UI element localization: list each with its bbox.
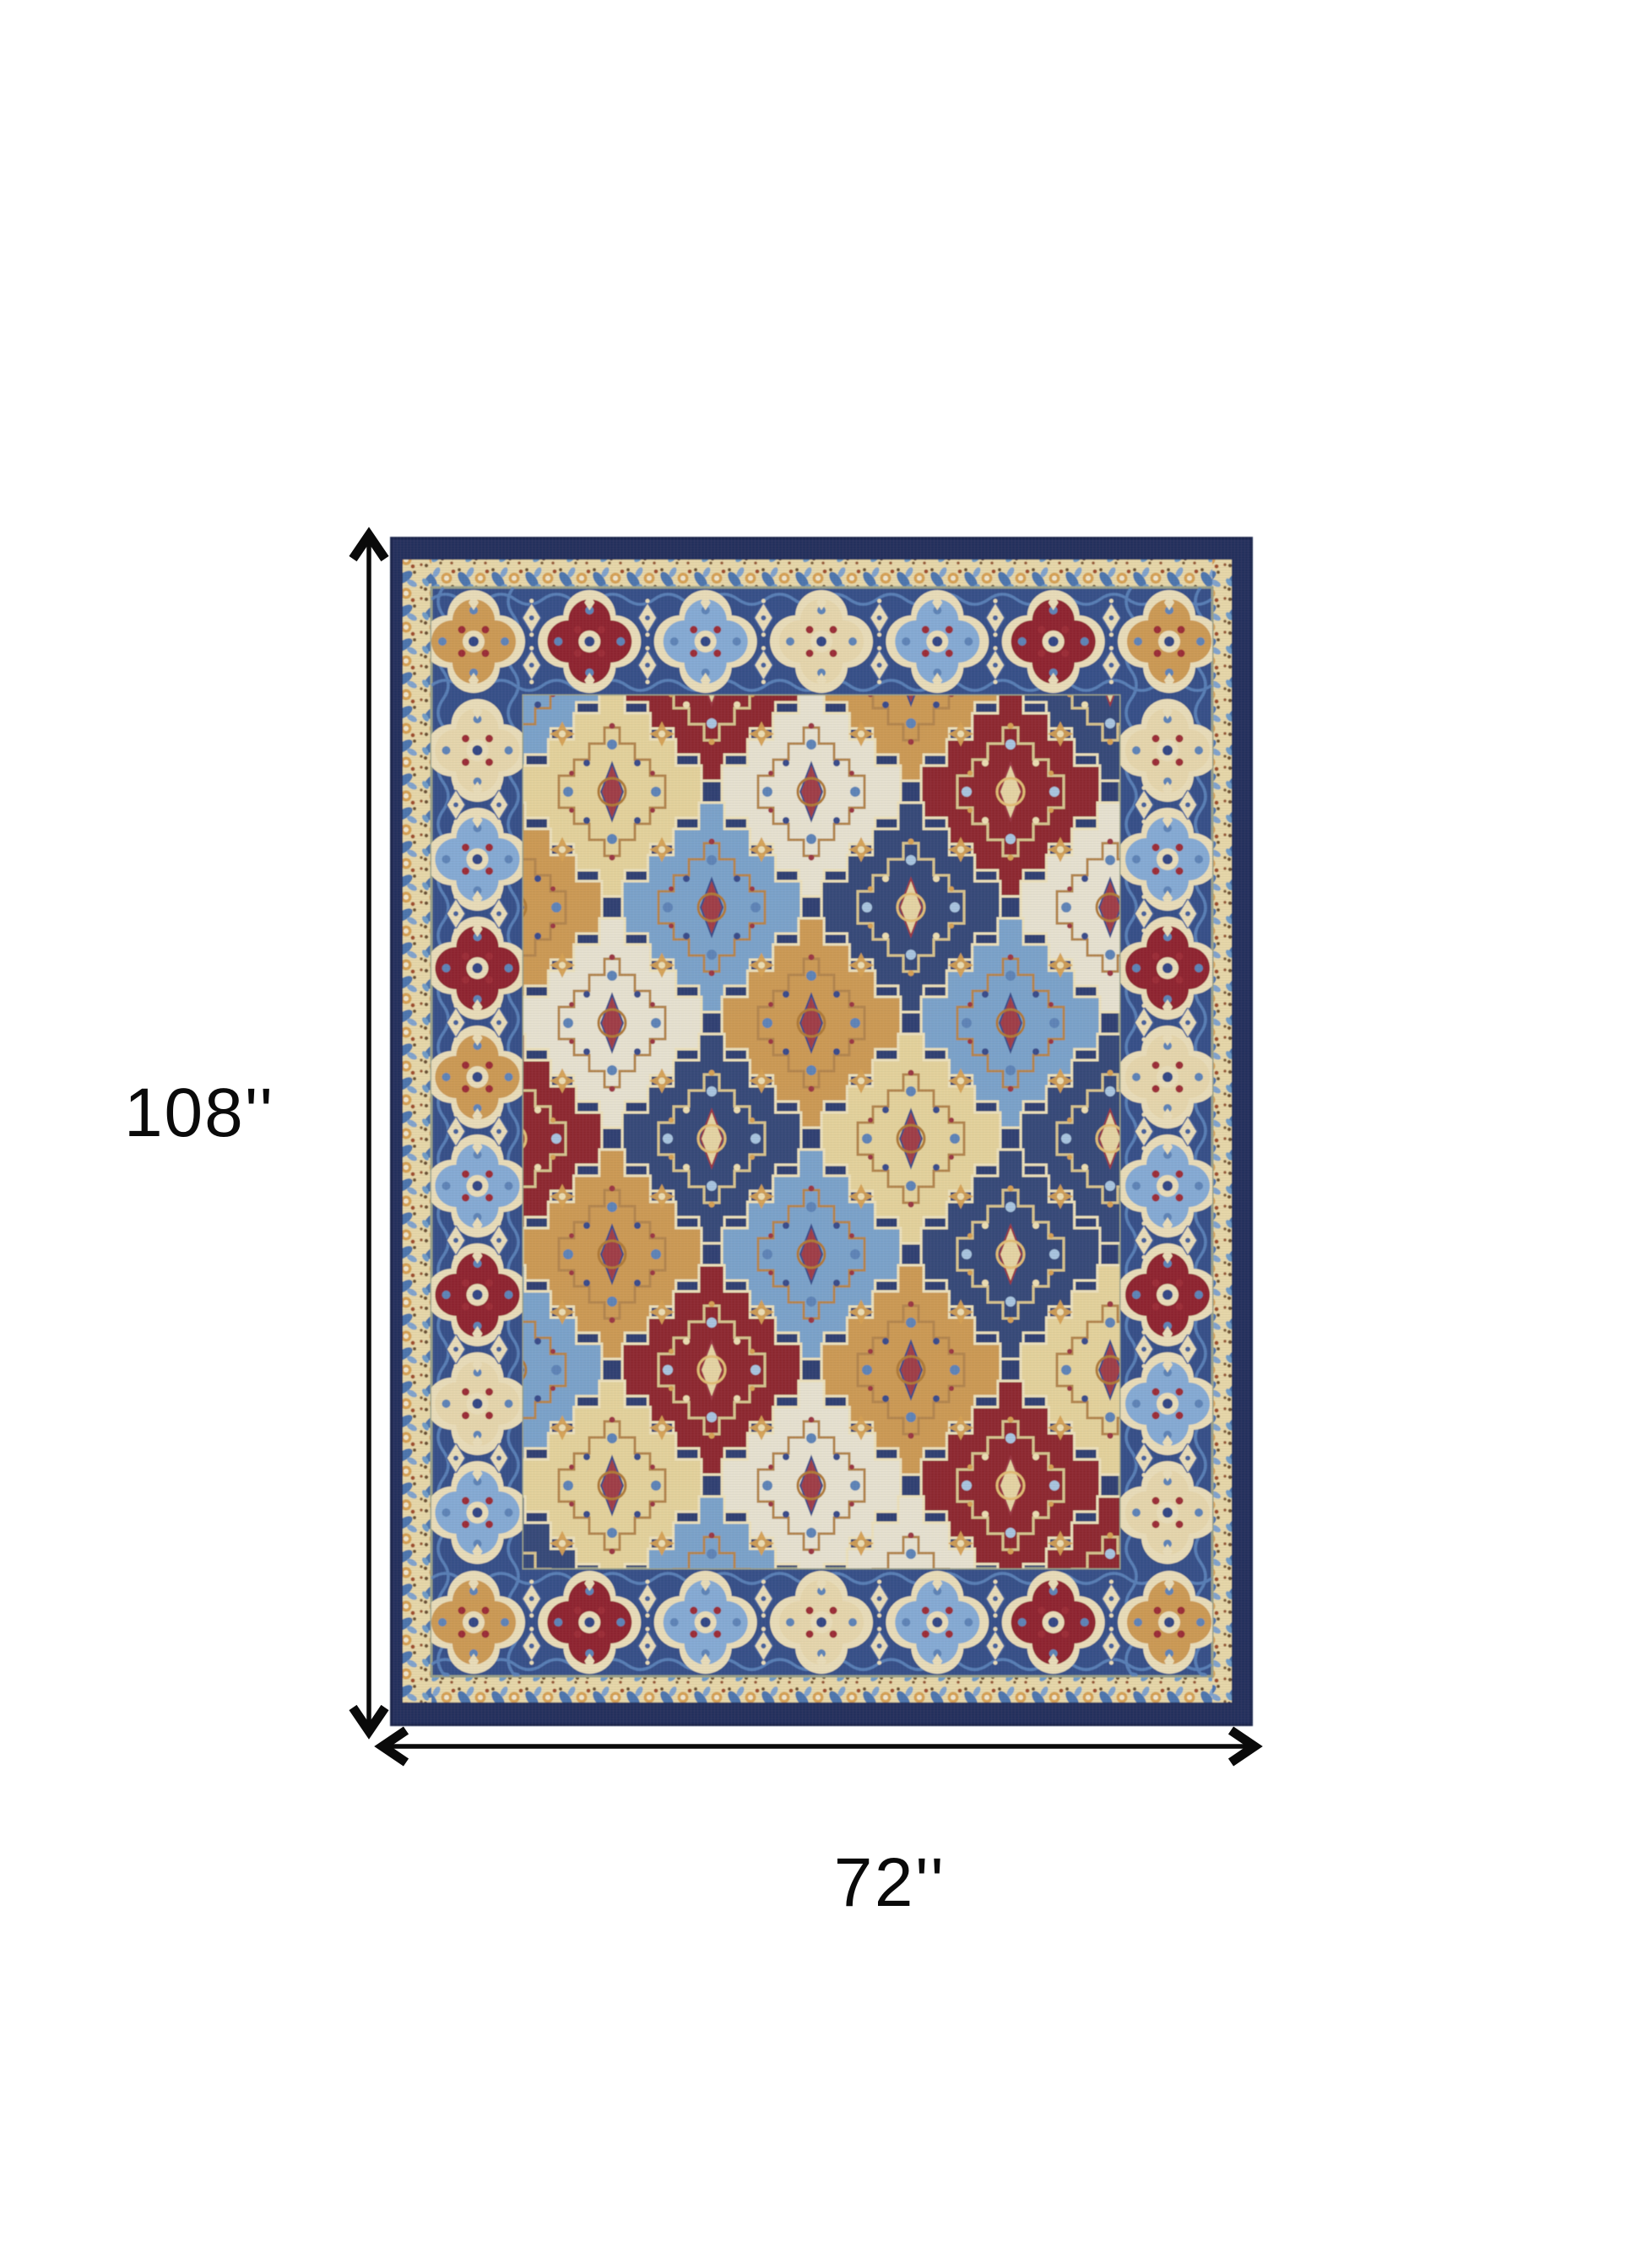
svg-text:72'': 72'' [834,1844,946,1921]
svg-text:108'': 108'' [124,1074,274,1151]
